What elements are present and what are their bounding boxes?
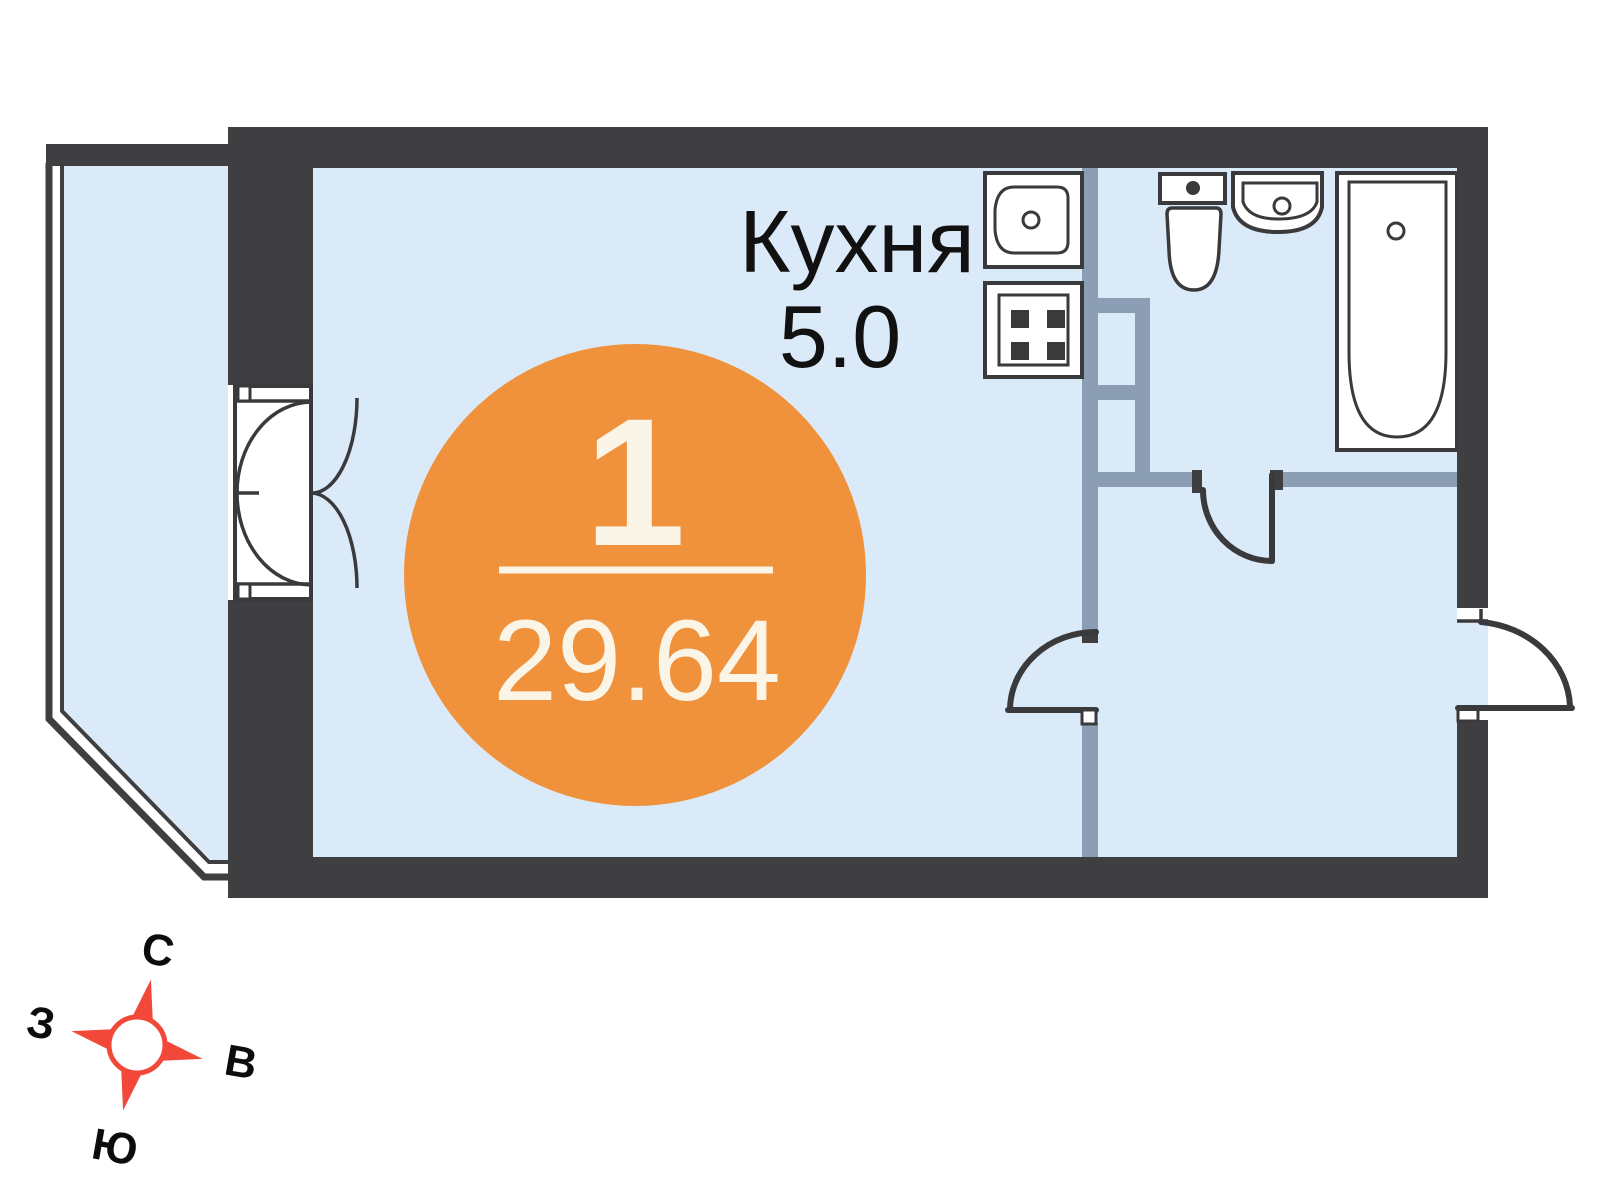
floor-plan: Кухня 5.0 1 29.64 С З В Ю [0,0,1600,1200]
top-wall [228,127,1488,168]
kitchen-partition-lower [1082,723,1098,857]
stove-icon [985,283,1082,377]
bottom-wall [228,857,1488,898]
area-badge: 1 29.64 [404,344,866,806]
compass-hub [109,1017,165,1073]
left-wall-upper [228,127,313,385]
duct-rung-middle [1098,385,1135,400]
bathroom-wall-left [1082,472,1192,487]
balcony-top-slab [46,144,228,166]
balcony [46,144,228,877]
duct-bar-right [1135,298,1150,477]
compass-rose [58,966,217,1125]
balcony-door-sill-tick-top [238,386,250,401]
right-wall-lower [1457,720,1488,898]
compass-east-label: В [221,1036,261,1090]
kitchen-area-label: 5.0 [779,287,901,386]
bathtub-icon [1337,173,1457,450]
kitchen-sink-icon [985,173,1082,267]
compass-west-label: З [23,997,59,1050]
bathroom-wall-right [1283,472,1457,487]
right-wall-upper [1457,127,1488,608]
entrance-opening-floor [1457,621,1488,708]
balcony-door-sill-tick-bottom [238,584,250,599]
compass-north-label: С [138,924,178,978]
floor-plan-page: Кухня 5.0 1 29.64 С З В Ю [0,0,1600,1200]
kitchen-label: Кухня [739,192,975,291]
room-count: 1 [584,380,685,584]
kitchen-partition-upper [1082,168,1098,630]
left-wall-lower [228,600,313,857]
area-value: 29.64 [493,597,781,725]
compass-south-label: Ю [88,1119,141,1175]
entrance-door-swing [1481,622,1570,706]
washbasin-icon [1233,173,1322,232]
